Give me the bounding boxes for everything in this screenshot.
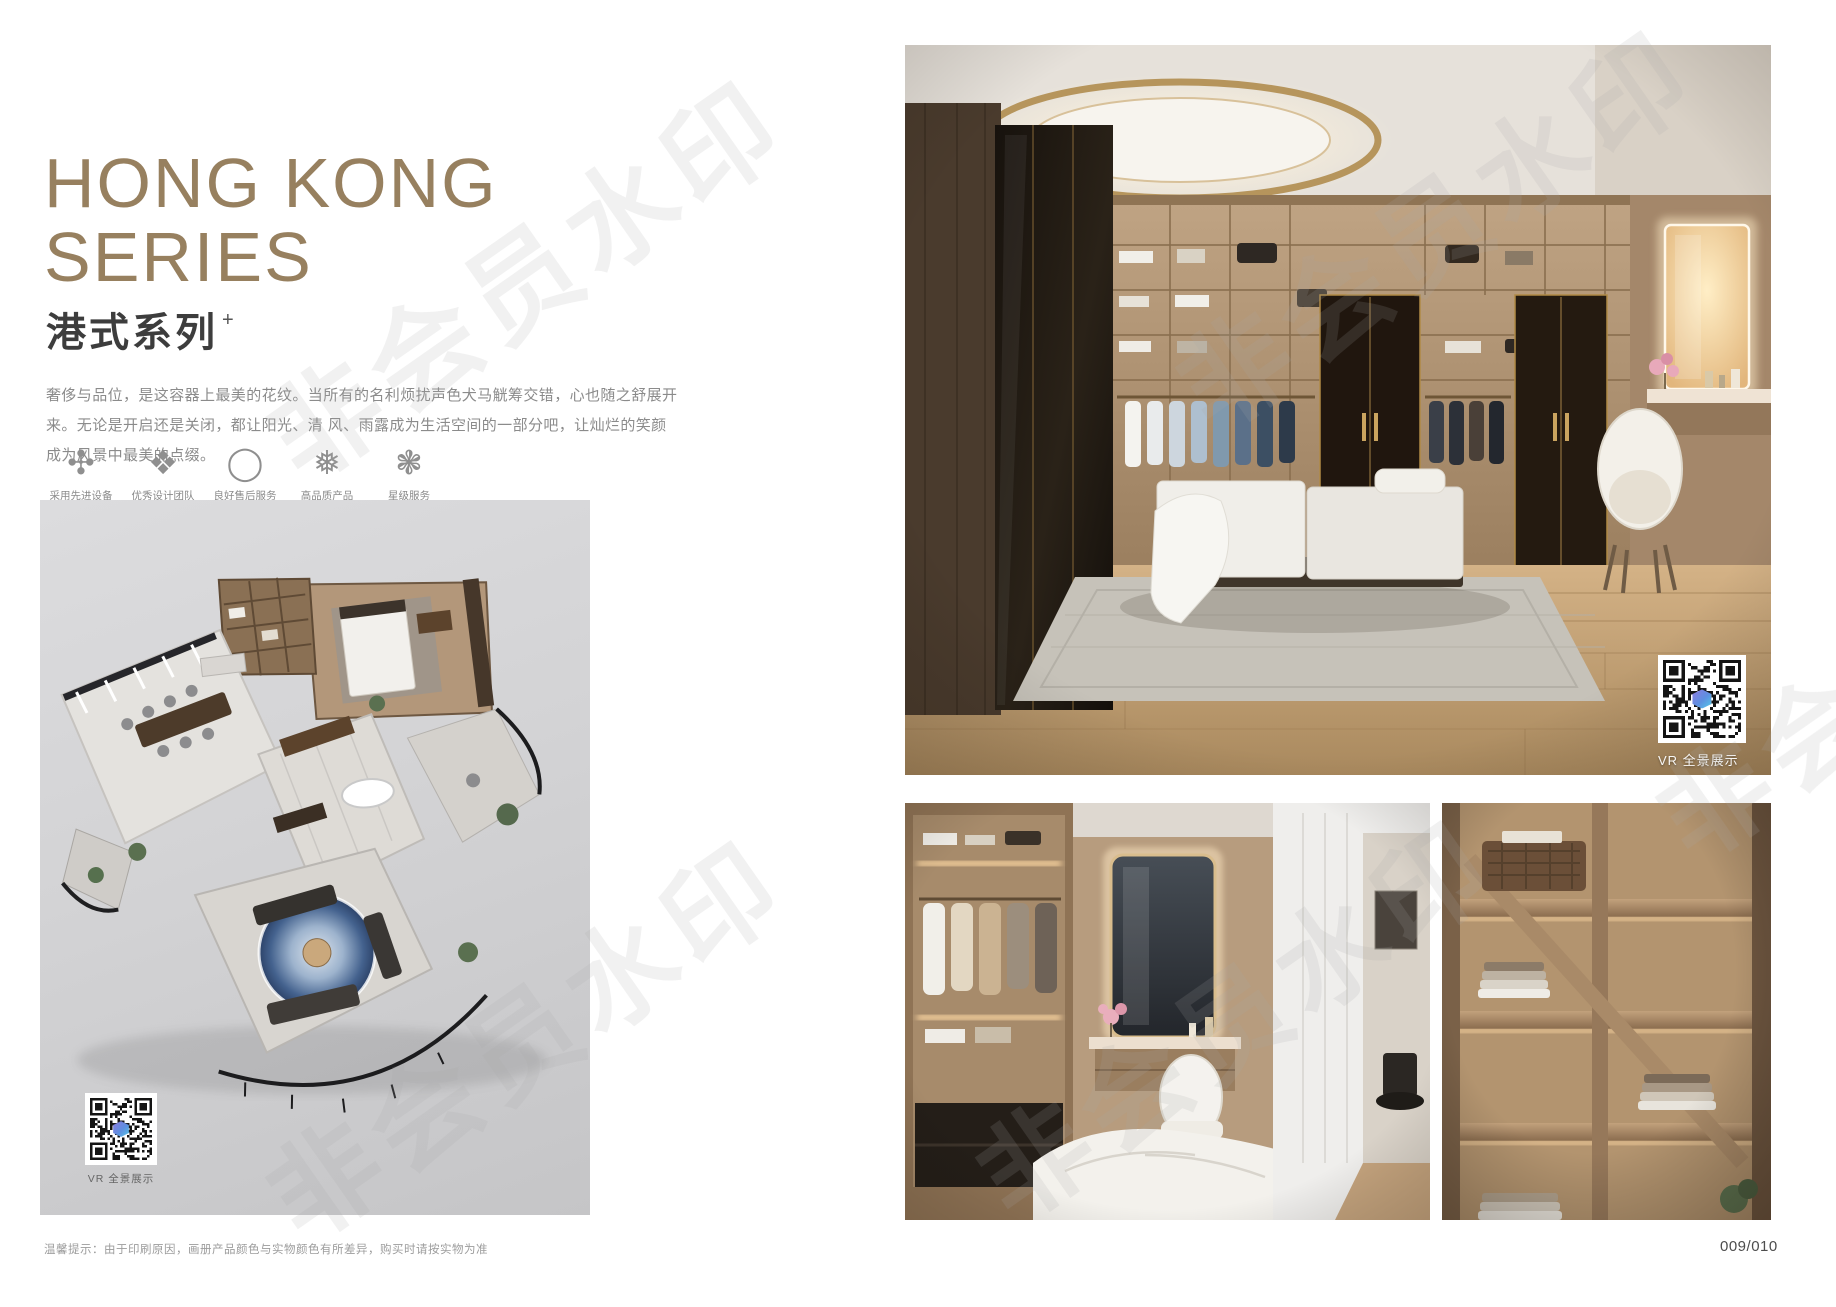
plus-mark: + [222,309,237,331]
feature-design-team: ❖ 优秀设计团队 [130,443,196,503]
vr-caption: VR 全景展示 [85,1171,157,1186]
series-title-line2: SERIES [44,220,498,294]
qr-code [85,1093,157,1165]
main-photo-vr-qr: VR 全景展示 [1658,655,1746,769]
photo-shelf-closeup [1442,803,1771,1220]
page-number: 009/010 [1720,1238,1778,1255]
feature-after-sales: ◯ 良好售后服务 [212,443,278,503]
series-title: HONG KONG SERIES [44,146,498,294]
main-photo-walkin-closet: VR 全景展示 [905,45,1771,775]
series-title-line1: HONG KONG [44,146,498,220]
floorplan-vr-qr: VR 全景展示 [85,1093,157,1186]
feature-list: ✣ 采用先进设备 ❖ 优秀设计团队 ◯ 良好售后服务 ❅ 高品质产品 ❃ 星级服… [48,443,442,503]
vr-caption: VR 全景展示 [1658,750,1746,769]
pinwheel-icon: ✣ [67,443,95,483]
series-subtitle-text: 港式系列 [46,311,218,355]
footer-disclaimer: 温馨提示：由于印刷原因，画册产品颜色与实物颜色有所差异，购买时请按实物为准 [44,1241,488,1257]
rosette-icon: ❖ [148,443,178,483]
snowflake-icon: ❅ [313,443,341,483]
star-flower-icon: ❃ [395,443,423,483]
ring-icon: ◯ [227,443,264,483]
floorplan-panel: VR 全景展示 [40,500,590,1215]
qr-code [1658,655,1746,743]
catalog-page: HONG KONG SERIES 港式系列+ 奢侈与品位，是这容器上最美的花纹。… [0,0,1836,1307]
feature-advanced-equipment: ✣ 采用先进设备 [48,443,114,503]
series-subtitle: 港式系列+ [46,300,233,358]
feature-star-service: ❃ 星级服务 [376,443,442,503]
feature-quality-product: ❅ 高品质产品 [294,443,360,503]
photo-vanity-corner [905,803,1430,1220]
